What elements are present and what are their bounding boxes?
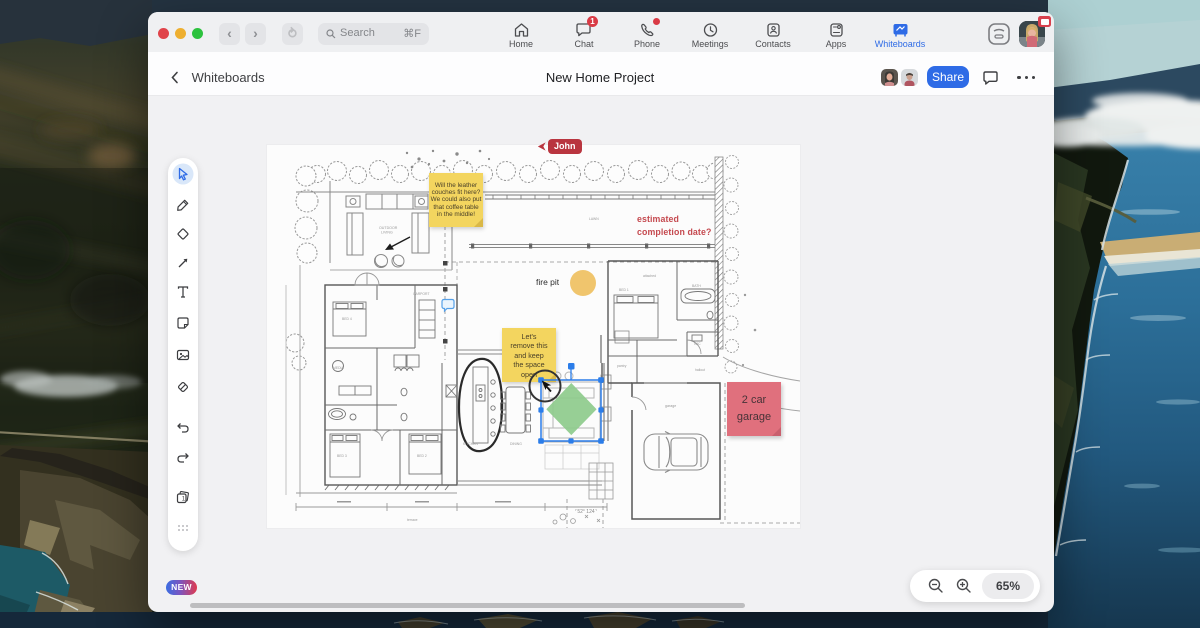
svg-text:BED 2: BED 2 <box>417 454 427 458</box>
svg-text:attached: attached <box>643 274 656 278</box>
svg-text:BED 4: BED 4 <box>342 317 352 321</box>
svg-text:garage: garage <box>665 404 676 408</box>
svg-text:KITCHEN: KITCHEN <box>463 442 478 446</box>
svg-text:CARPORT: CARPORT <box>413 292 430 296</box>
svg-text:MEDIA: MEDIA <box>333 366 344 370</box>
svg-text:1: 1 <box>182 496 186 502</box>
svg-text:BATH: BATH <box>692 284 701 288</box>
svg-text:⌜52° 124⌝: ⌜52° 124⌝ <box>575 509 597 515</box>
svg-text:DINING: DINING <box>510 442 522 446</box>
svg-text:LIVING: LIVING <box>381 231 393 235</box>
svg-text:BED 1: BED 1 <box>619 288 629 292</box>
svg-text:LAWN: LAWN <box>589 217 599 221</box>
svg-text:WIC: WIC <box>694 342 701 346</box>
svg-text:hallout: hallout <box>695 368 705 372</box>
svg-text:OUTDOOR: OUTDOOR <box>379 226 398 230</box>
svg-text:BED 3: BED 3 <box>337 454 347 458</box>
svg-text:terrace: terrace <box>407 518 418 522</box>
